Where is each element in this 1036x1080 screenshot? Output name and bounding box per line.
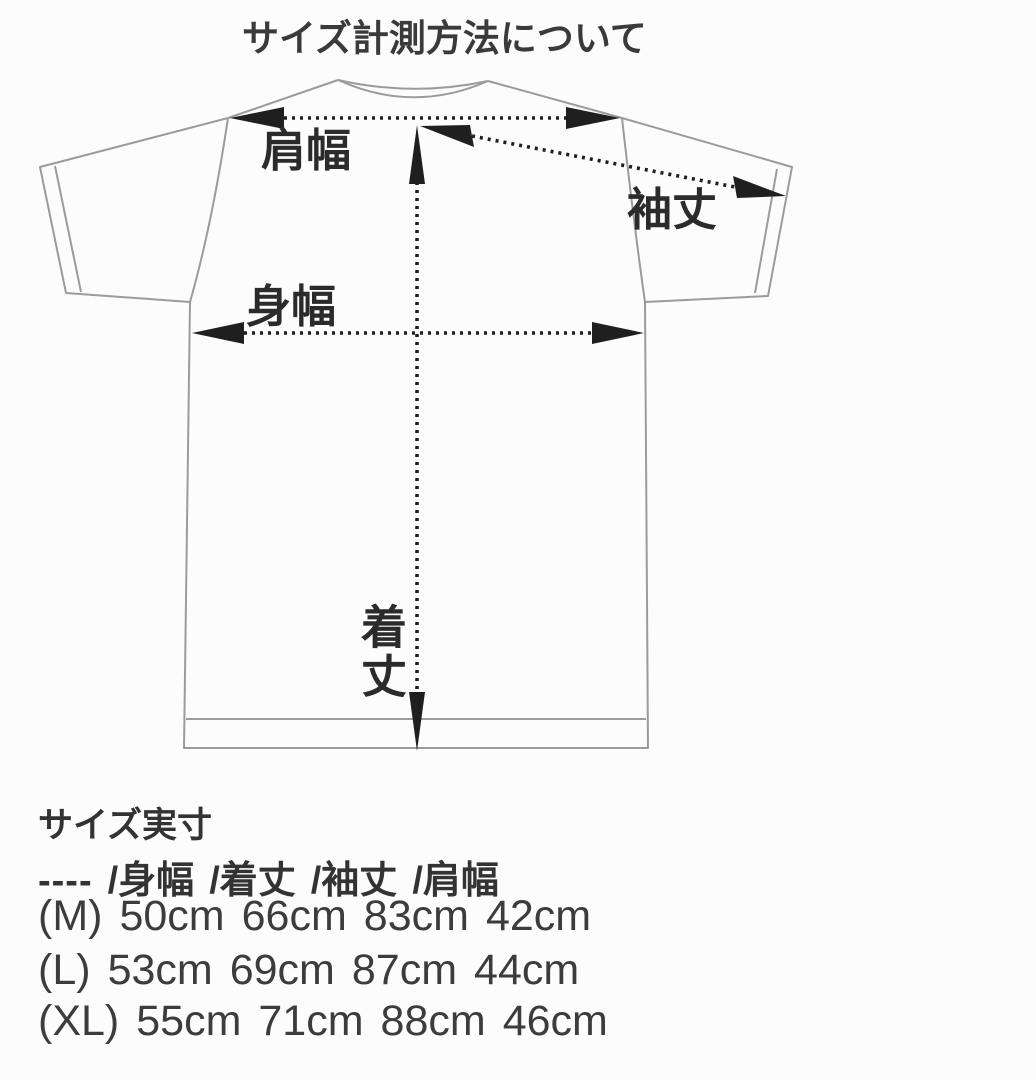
size-label: (L): [38, 946, 91, 995]
sleeve-length-arrow: [420, 125, 786, 198]
left-armhole: [190, 118, 228, 302]
body-length-label: 着丈: [358, 603, 404, 701]
size-table-heading: サイズ実寸: [38, 797, 212, 848]
table-row-m: (M) 50cm 66cm 83cm 42cm: [38, 892, 591, 941]
value-body-length: 69cm: [230, 946, 335, 995]
value-sleeve-length: 88cm: [381, 997, 486, 1046]
value-shoulder-width: 44cm: [474, 946, 579, 995]
collar-outer-line: [338, 80, 488, 89]
left-cuff-seam: [55, 166, 81, 292]
value-body-width: 55cm: [136, 997, 241, 1046]
body-width-label: 身幅: [246, 284, 336, 329]
sleeve-length-label: 袖丈: [627, 187, 717, 232]
value-sleeve-length: 87cm: [352, 946, 457, 995]
value-body-width: 50cm: [119, 892, 224, 941]
value-body-length: 71cm: [258, 997, 363, 1046]
left-sleeve: [40, 118, 228, 302]
body-length-arrow: [409, 125, 425, 751]
value-sleeve-length: 83cm: [364, 892, 469, 941]
right-shoulder-line: [488, 81, 622, 118]
value-body-width: 53cm: [108, 946, 213, 995]
value-shoulder-width: 42cm: [486, 892, 591, 941]
value-shoulder-width: 46cm: [503, 997, 608, 1046]
value-body-length: 66cm: [242, 892, 347, 941]
size-label: (M): [38, 892, 102, 941]
size-guide-page: サイズ計測方法について: [0, 0, 1036, 1080]
table-row-xl: (XL) 55cm 71cm 88cm 46cm: [38, 997, 608, 1046]
shoulder-width-label: 肩幅: [261, 128, 351, 173]
size-label: (XL): [38, 997, 119, 1046]
table-row-l: (L) 53cm 69cm 87cm 44cm: [38, 946, 579, 995]
